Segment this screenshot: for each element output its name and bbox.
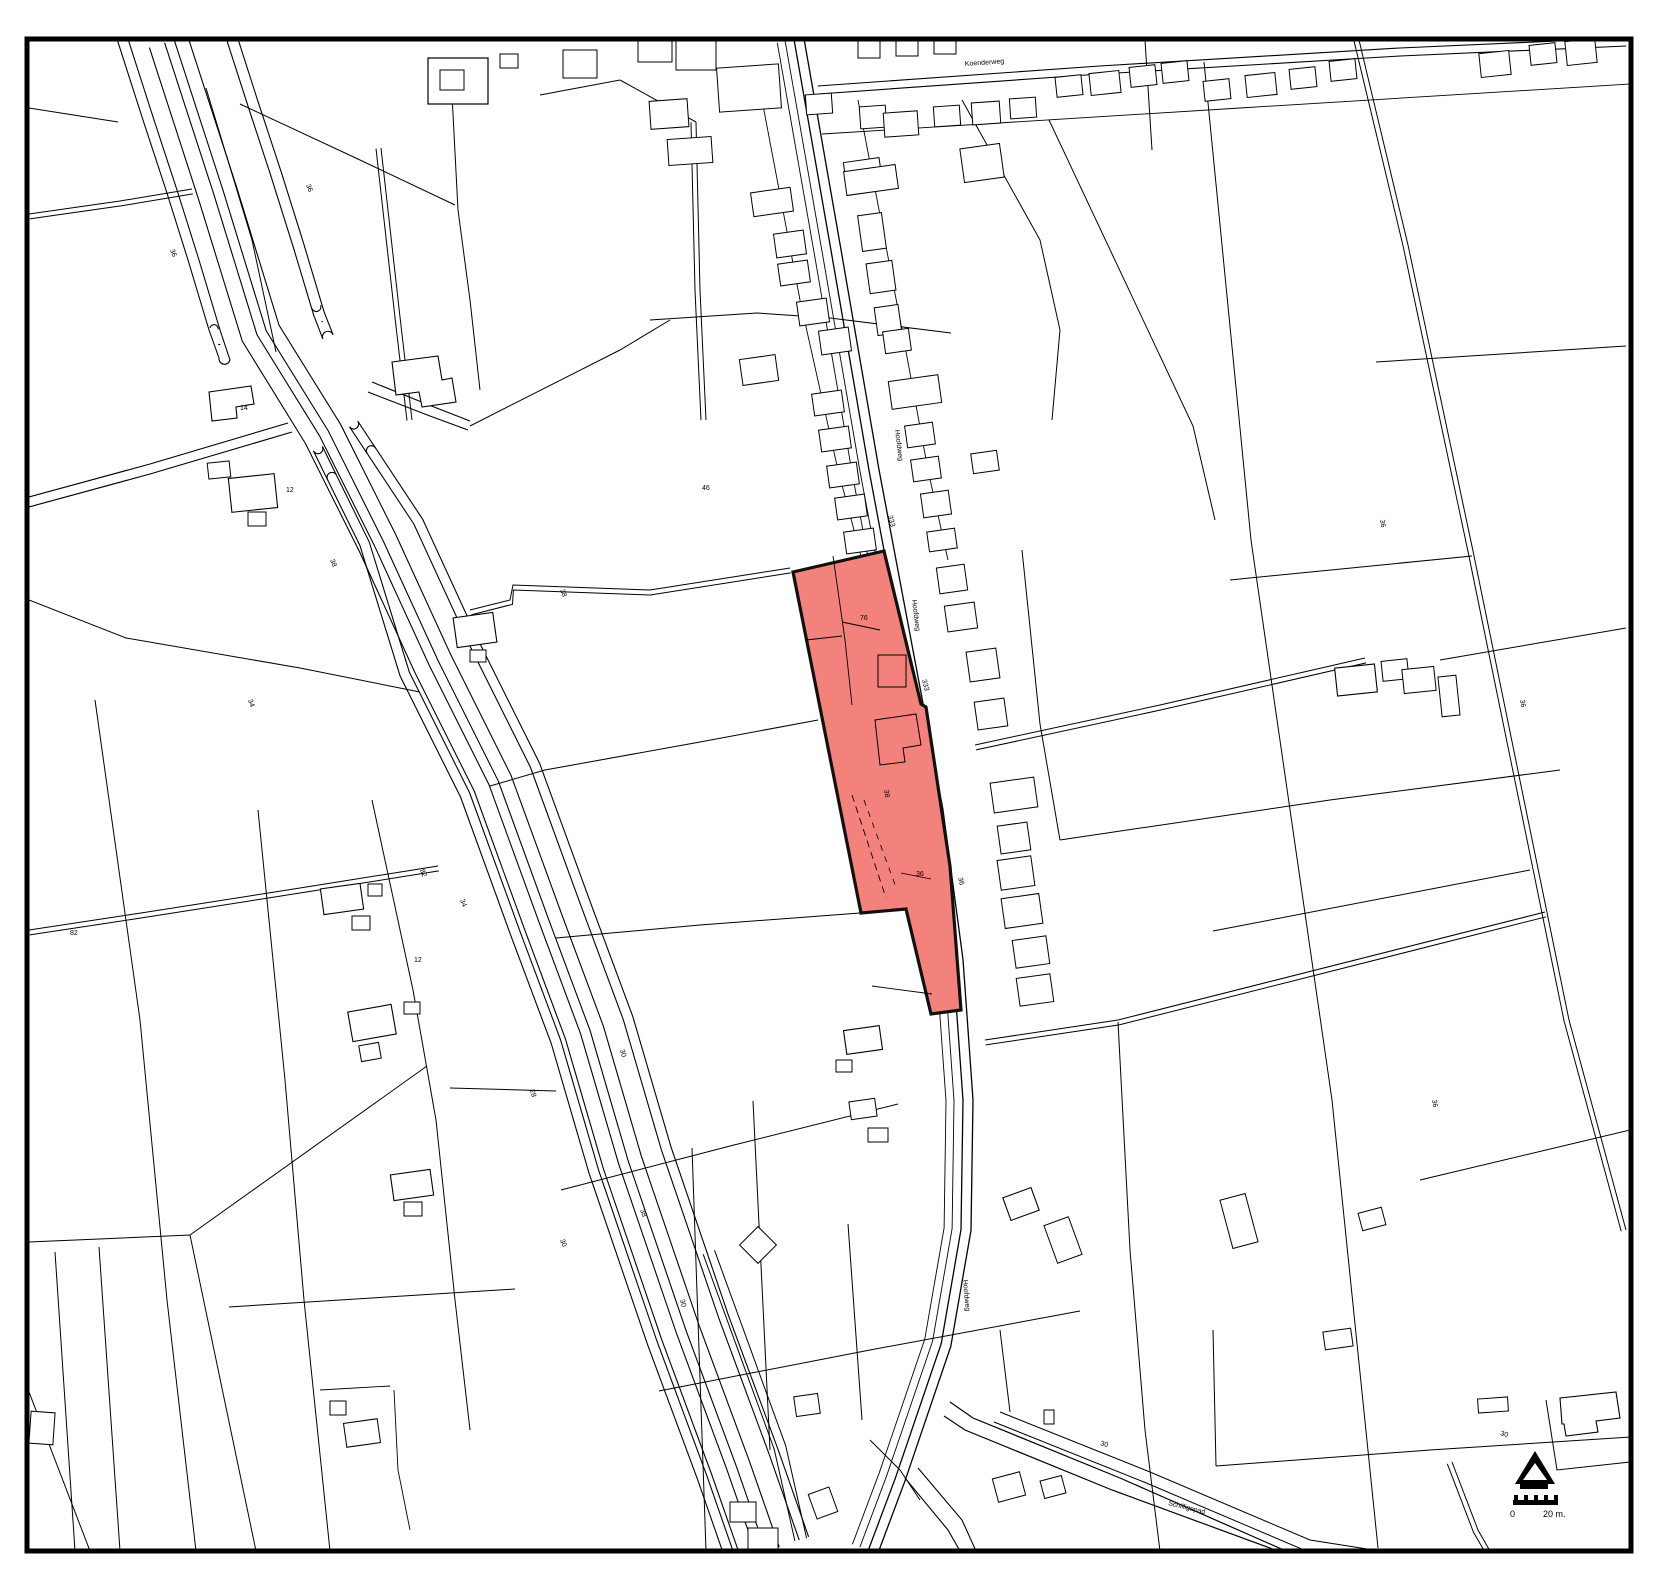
svg-text:46: 46	[702, 485, 710, 492]
svg-text:12: 12	[286, 487, 294, 494]
svg-text:12: 12	[414, 957, 422, 964]
svg-text:36: 36	[1430, 1099, 1438, 1108]
svg-text:20 m.: 20 m.	[1543, 1509, 1566, 1519]
svg-text:38: 38	[882, 789, 890, 798]
svg-text:76: 76	[860, 615, 868, 622]
svg-text:36: 36	[916, 871, 924, 878]
svg-text:82: 82	[70, 930, 78, 937]
svg-text:14: 14	[240, 405, 248, 412]
svg-text:36: 36	[1378, 519, 1386, 528]
svg-text:0: 0	[1510, 1509, 1515, 1519]
svg-text:36: 36	[1518, 699, 1526, 708]
